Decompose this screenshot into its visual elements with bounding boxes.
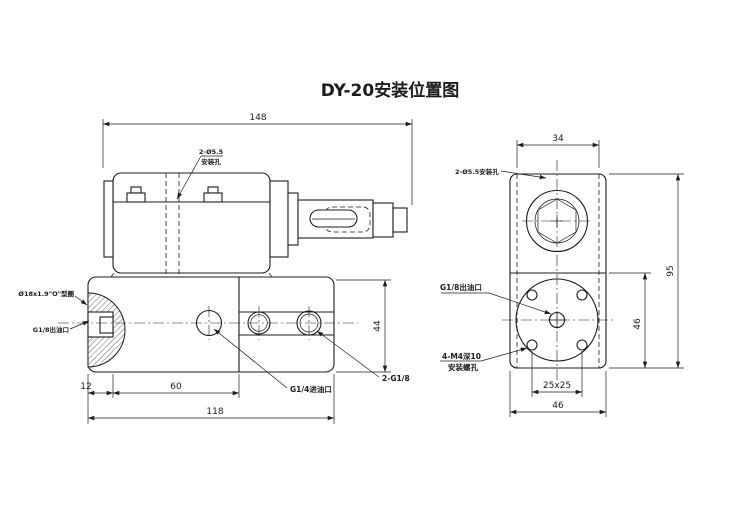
dim-25x25: 25x25 <box>543 381 571 391</box>
drawing-sheet: DY-20安装位置图 <box>0 0 750 530</box>
armature-slot <box>310 210 357 227</box>
label-screw-holes-line1: 4-M4深10 <box>442 351 481 361</box>
dim-118: 118 <box>206 407 223 417</box>
dim-60: 60 <box>170 382 182 392</box>
label-front-outlet: G1/8出油口 <box>440 282 482 292</box>
coil-left-cap <box>104 181 113 257</box>
shaft-tip <box>393 208 407 232</box>
dim-46-bottom: 46 <box>552 401 564 411</box>
side-view: 148 44 12 60 118 2-Ø5.5 安装孔 Ø18x1.9 <box>18 113 412 424</box>
label-screw-holes-line2: 安装螺孔 <box>448 362 478 372</box>
coil-right-flange <box>270 181 288 257</box>
front-view-plate <box>502 160 614 382</box>
label-front-mount-hole: 2-Ø5.5安装孔 <box>455 167 499 176</box>
dim-12: 12 <box>80 382 91 392</box>
page-title: DY-20安装位置图 <box>321 80 459 101</box>
dim-95: 95 <box>666 265 676 276</box>
label-mount-hole-line1: 2-Ø5.5 <box>199 148 224 156</box>
dim-148: 148 <box>249 113 266 123</box>
mounting-plate <box>510 174 606 368</box>
label-inlet-port: G1/4进油口 <box>290 384 332 394</box>
side-view-valve-body <box>58 273 358 372</box>
dim-44: 44 <box>373 320 383 332</box>
label-mount-hole-line2: 安装孔 <box>201 157 221 166</box>
front-view: 34 95 46 25x25 46 2-Ø5.5安装孔 <box>440 134 684 417</box>
dim-46-inner: 46 <box>633 318 643 330</box>
label-side-ports: 2-G1/8 <box>382 374 410 383</box>
label-outlet-port: G1/8出油口 <box>33 325 69 334</box>
label-o-ring: Ø18x1.9"O"型圈 <box>18 289 74 298</box>
dim-34: 34 <box>552 134 564 144</box>
drawing-canvas: DY-20安装位置图 <box>0 0 750 530</box>
end-nut <box>373 203 393 237</box>
